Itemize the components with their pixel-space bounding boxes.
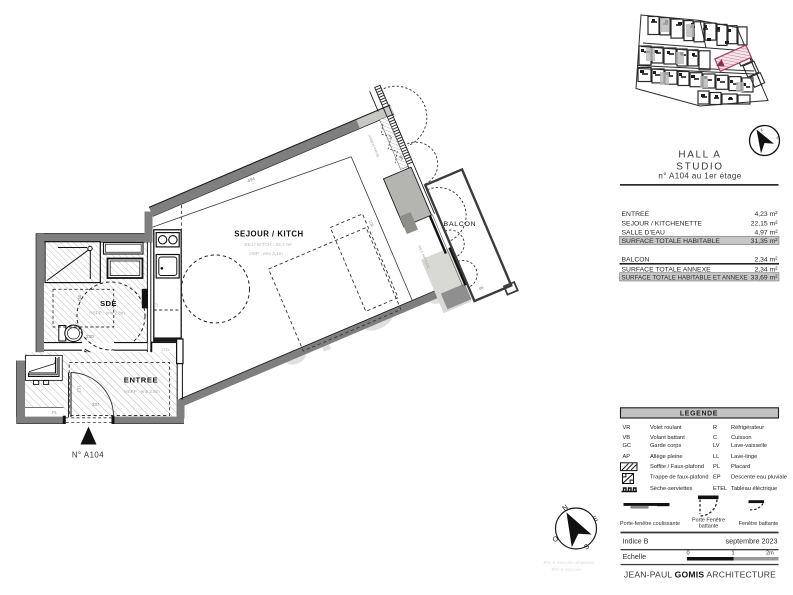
svg-text:LV: LV [713,443,720,449]
svg-text:R: R [713,425,717,431]
svg-text:SEJ / KITCH : 22,1 m²: SEJ / KITCH : 22,1 m² [244,242,292,248]
svg-text:SURFACE TOTALE HABITABLE ET AN: SURFACE TOTALE HABITABLE ET ANNEXE [622,274,748,281]
svg-text:Réfrigérateur: Réfrigérateur [731,425,764,431]
svg-text:337: 337 [92,402,100,407]
svg-text:VB: VB [623,435,631,441]
svg-text:SURFACE TOTALE ANNEXE: SURFACE TOTALE ANNEXE [622,266,712,273]
svg-text:AP: AP [623,454,631,460]
svg-text:230: 230 [86,334,94,339]
svg-text:GC: GC [623,443,632,449]
svg-text:ENTREE: ENTREE [124,376,158,385]
svg-text:SALLE D’EAU: SALLE D’EAU [622,229,666,236]
svg-text:ETEL: ETEL [713,486,727,492]
svg-text:Volet roulant: Volet roulant [650,425,682,431]
svg-text:Placard: Placard [731,464,750,470]
svg-text:BALCON: BALCON [622,256,650,263]
svg-text:JPG & associés: JPG & associés [551,567,581,572]
svg-text:Sèche-serviettes: Sèche-serviettes [650,486,693,492]
svg-text:PL: PL [52,410,58,415]
svg-text:150: 150 [77,294,82,302]
svg-text:PL: PL [713,464,720,470]
svg-text:2,34 m²: 2,34 m² [754,256,778,263]
svg-text:4,97 m²: 4,97 m² [754,229,778,236]
svg-text:33,69 m²: 33,69 m² [751,274,779,281]
svg-text:Echelle: Echelle [623,552,647,561]
svg-text:ENTREE: ENTREE [622,211,650,218]
svg-text:Indice B: Indice B [623,536,649,545]
svg-text:LEGENDE: LEGENDE [680,411,718,418]
svg-text:HSFP : env 2.8m: HSFP : env 2.8m [124,389,160,394]
svg-text:SURFACE TOTALE HABITABLE: SURFACE TOTALE HABITABLE [622,238,721,245]
svg-text:N° A104: N° A104 [72,451,104,460]
svg-text:Porte-fenêtre coulissante: Porte-fenêtre coulissante [620,521,680,527]
svg-text:septembre 2023: septembre 2023 [726,536,778,545]
svg-text:Garde corps: Garde corps [650,443,681,449]
svg-text:1: 1 [732,551,735,557]
svg-text:LL: LL [713,454,719,460]
svg-text:n° A104 au 1er étage: n° A104 au 1er étage [658,172,741,181]
svg-text:Trappe de faux-plafond: Trappe de faux-plafond [650,474,709,480]
svg-text:Soffite / Faux-plafond: Soffite / Faux-plafond [650,464,704,470]
svg-text:Volant battant: Volant battant [650,435,685,441]
svg-text:VR: VR [623,425,631,431]
svg-text:EP: EP [713,474,721,480]
svg-text:Allège pleine: Allège pleine [650,454,683,460]
svg-text:22,15 m²: 22,15 m² [751,221,779,228]
svg-text:SEJOUR / KITCH: SEJOUR / KITCH [234,230,303,239]
svg-text:JEAN-PAUL GOMIS ARCHITECTURE: JEAN-PAUL GOMIS ARCHITECTURE [624,570,776,580]
svg-text:2m: 2m [766,551,774,557]
svg-text:Lave-vaisselle: Lave-vaisselle [731,443,767,449]
svg-text:Fenêtre battante: Fenêtre battante [739,521,779,527]
svg-text:Tableau éléctrique: Tableau éléctrique [731,486,777,492]
svg-text:2,34 m²: 2,34 m² [754,266,778,273]
svg-text:BALCON: BALCON [444,221,477,228]
svg-text:31,35 m²: 31,35 m² [751,238,779,245]
svg-text:4,23 m²: 4,23 m² [754,211,778,218]
svg-text:C: C [713,435,717,441]
svg-text:HSP : env 3,1m: HSP : env 3,1m [249,251,283,257]
svg-text:0: 0 [687,551,690,557]
svg-text:SEJOUR / KITCHENETTE: SEJOUR / KITCHENETTE [622,221,703,228]
svg-text:JPG & associés urbanisme: JPG & associés urbanisme [543,560,595,565]
svg-text:HALL A: HALL A [678,150,721,161]
svg-text:ETEL: ETEL [162,348,171,352]
svg-text:137: 137 [76,385,81,393]
svg-text:Cuisson: Cuisson [731,435,752,441]
svg-text:battante: battante [699,523,718,529]
svg-text:Lave-linge: Lave-linge [731,454,757,460]
svg-text:SDE: SDE [100,299,117,308]
svg-text:Descente eau pluviale: Descente eau pluviale [731,474,787,480]
svg-text:HSFP : env 2.8m: HSFP : env 2.8m [89,311,125,316]
